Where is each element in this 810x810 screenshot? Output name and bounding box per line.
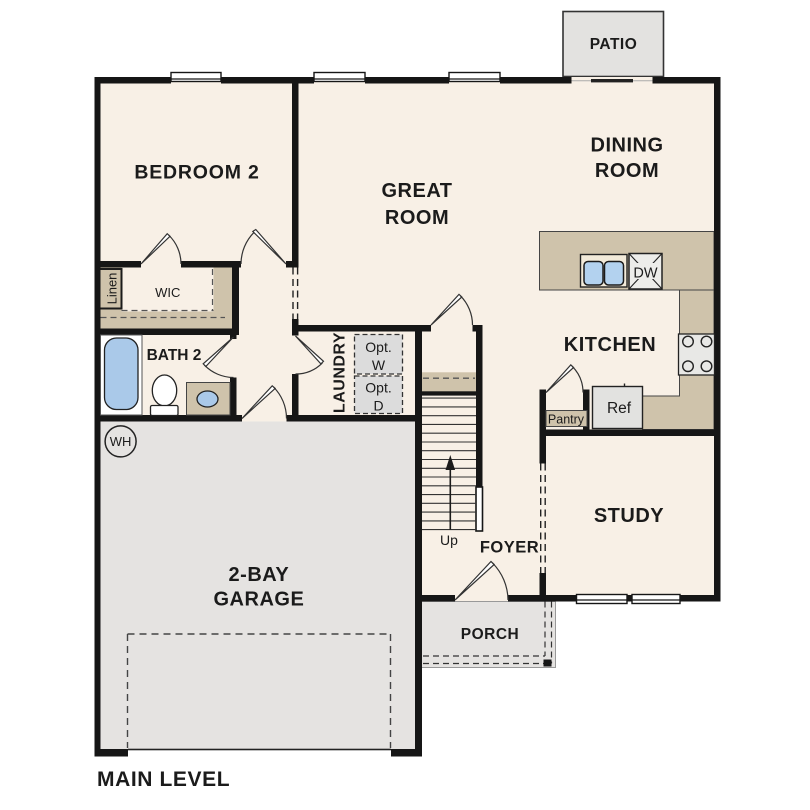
svg-text:BEDROOM 2: BEDROOM 2 — [134, 162, 259, 184]
svg-text:ROOM: ROOM — [595, 160, 659, 182]
svg-text:WH: WH — [110, 434, 132, 449]
svg-text:DINING: DINING — [591, 135, 664, 157]
svg-text:FOYER: FOYER — [480, 539, 539, 557]
svg-text:GREAT: GREAT — [381, 180, 452, 202]
svg-text:STUDY: STUDY — [594, 505, 664, 527]
svg-text:BATH 2: BATH 2 — [147, 347, 202, 364]
svg-text:WIC: WIC — [155, 285, 180, 300]
svg-text:GARAGE: GARAGE — [214, 589, 305, 611]
svg-text:D: D — [373, 398, 383, 414]
svg-text:W: W — [372, 357, 386, 373]
svg-text:Ref: Ref — [607, 400, 632, 417]
svg-text:Pantry: Pantry — [548, 413, 585, 427]
svg-text:PATIO: PATIO — [590, 36, 638, 53]
svg-text:Opt.: Opt. — [365, 380, 391, 396]
svg-text:ROOM: ROOM — [385, 207, 449, 229]
svg-text:Opt.: Opt. — [365, 339, 391, 355]
svg-text:Linen: Linen — [105, 273, 120, 305]
svg-text:MAIN LEVEL: MAIN LEVEL — [97, 768, 230, 791]
svg-text:Up: Up — [440, 532, 458, 548]
svg-text:DW: DW — [633, 266, 657, 282]
svg-text:LAUNDRY: LAUNDRY — [332, 332, 349, 413]
svg-text:KITCHEN: KITCHEN — [564, 334, 656, 356]
svg-text:PORCH: PORCH — [461, 626, 519, 643]
svg-text:2-BAY: 2-BAY — [229, 564, 290, 586]
